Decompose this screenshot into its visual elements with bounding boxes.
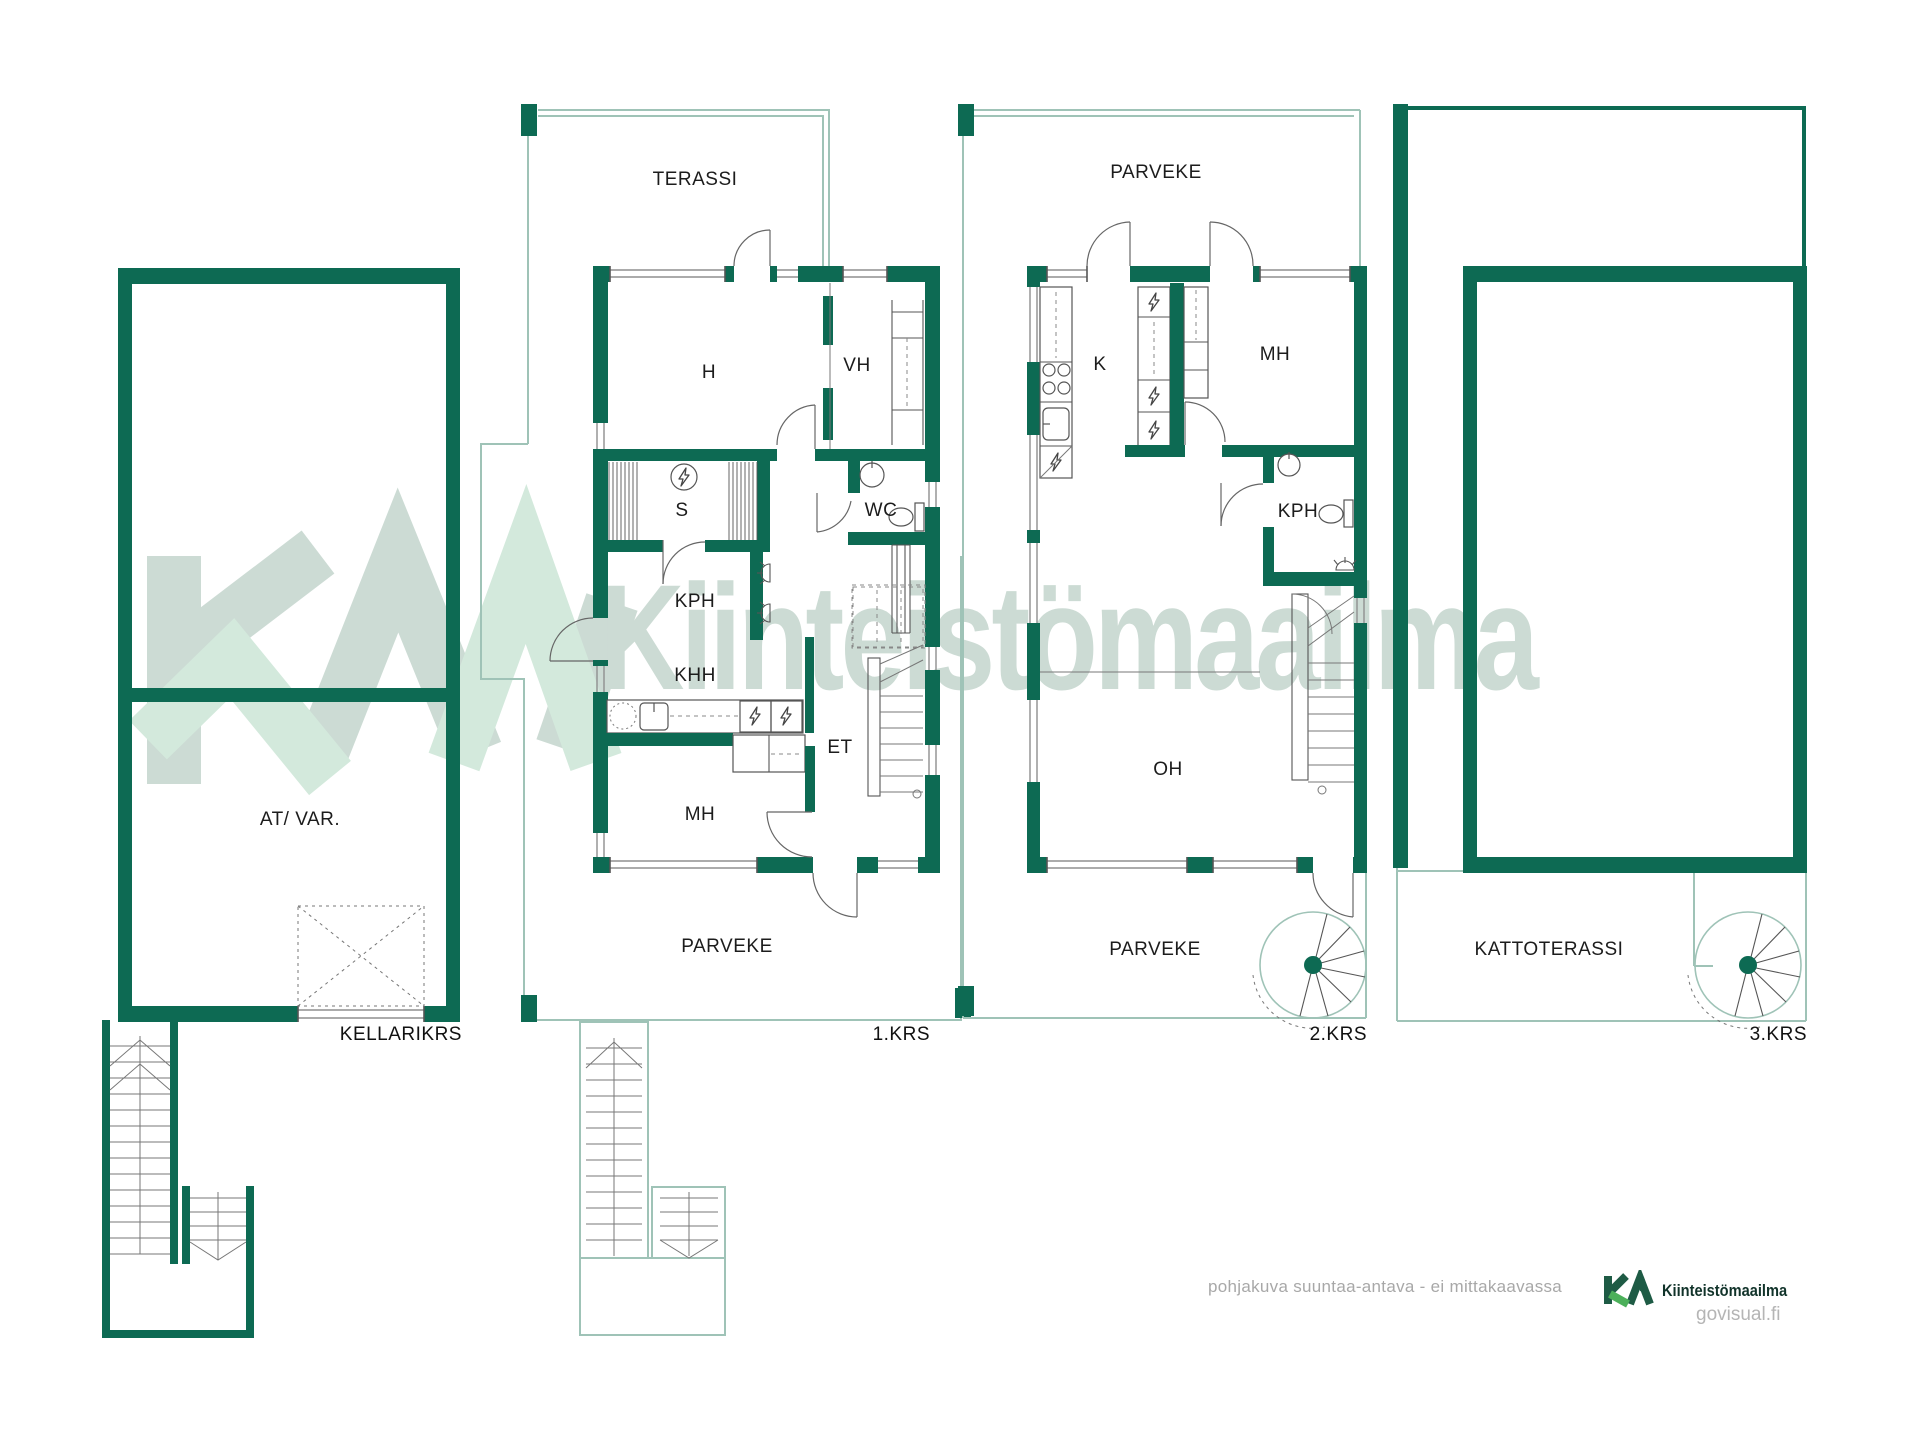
khh-counter bbox=[607, 700, 803, 733]
floor-3krs bbox=[1393, 104, 1807, 1028]
area-label-parveke-1: PARVEKE bbox=[681, 936, 773, 958]
plan-linework bbox=[0, 0, 1920, 1440]
disclaimer-text: pohjakuva suuntaa-antava - ei mittakaava… bbox=[1208, 1277, 1562, 1297]
area-label-parveke-2bot: PARVEKE bbox=[1109, 939, 1201, 961]
room-label-s: S bbox=[675, 500, 688, 522]
f3-spiral-stair-icon bbox=[1688, 912, 1801, 1028]
room-label-oh: OH bbox=[1153, 759, 1183, 781]
room-label-et: ET bbox=[827, 737, 852, 759]
km-logo-icon bbox=[1600, 1270, 1658, 1310]
floorplan-canvas: Kiinteistömaailma bbox=[0, 0, 1920, 1440]
floor-label-2krs: 2.KRS bbox=[1310, 1024, 1367, 1046]
floor-2krs bbox=[958, 104, 1367, 1028]
room-label-vh: VH bbox=[843, 355, 870, 377]
garage-door-opening bbox=[298, 1006, 424, 1022]
room-label-khh: KHH bbox=[674, 665, 716, 687]
area-label-terassi: TERASSI bbox=[653, 169, 738, 191]
sauna bbox=[593, 460, 770, 584]
room-label-kph-2: KPH bbox=[1278, 501, 1319, 523]
room-label-mh-1: MH bbox=[685, 804, 716, 826]
room-label-k: K bbox=[1093, 354, 1106, 376]
room-label-kph-1: KPH bbox=[675, 591, 716, 613]
basement-exterior-stair bbox=[102, 1020, 254, 1338]
f2-spiral-stair-icon bbox=[1253, 912, 1366, 1028]
mh-closet bbox=[733, 735, 805, 772]
vh-closet bbox=[823, 283, 923, 449]
wall-lamp-icon bbox=[1334, 557, 1356, 570]
floor-1krs bbox=[481, 104, 971, 1335]
kph2-toilet-icon bbox=[1319, 505, 1343, 523]
floor-label-1krs: 1.KRS bbox=[873, 1024, 930, 1046]
appliance-tower bbox=[1138, 287, 1170, 447]
floor-label-3krs: 3.KRS bbox=[1750, 1024, 1807, 1046]
f2-right-wall bbox=[1354, 266, 1367, 873]
mh-closet-f2 bbox=[1184, 287, 1208, 398]
brand-name: Kiinteistömaailma bbox=[1662, 1281, 1787, 1301]
room-label-mh-2: MH bbox=[1260, 344, 1291, 366]
electrical-panel-icon bbox=[671, 464, 697, 490]
area-label-parveke-2top: PARVEKE bbox=[1110, 162, 1202, 184]
f2-staircase bbox=[1292, 594, 1354, 794]
f1-left-wall bbox=[550, 266, 608, 873]
garage-door-swing-area bbox=[298, 906, 424, 1006]
f2-parveke-outline bbox=[963, 110, 1366, 1018]
f1-exterior-stair bbox=[580, 1022, 725, 1335]
floor-label-kellarikrs: KELLARIKRS bbox=[340, 1024, 462, 1046]
et-wardrobe bbox=[852, 545, 925, 648]
f2-left-wall bbox=[1027, 266, 1040, 873]
brand-site: govisual.fi bbox=[1696, 1304, 1781, 1326]
terassi-outline bbox=[481, 110, 961, 1020]
et-staircase bbox=[853, 587, 923, 798]
f1-bottom-wall bbox=[593, 857, 940, 917]
kitchen-fittings bbox=[1040, 287, 1072, 478]
area-label-kattoterassi: KATTOTERASSI bbox=[1475, 939, 1624, 961]
f2-top-wall bbox=[1027, 222, 1367, 282]
room-label-at-var: AT/ VAR. bbox=[260, 809, 340, 831]
room-label-h: H bbox=[702, 362, 716, 384]
room-label-wc: WC bbox=[865, 500, 898, 522]
brand-block: Kiinteistömaailma govisual.fi bbox=[1600, 1270, 1658, 1315]
floor-kellarikrs bbox=[102, 268, 460, 1338]
f1-right-wall bbox=[925, 266, 940, 873]
f1-top-wall bbox=[593, 230, 940, 282]
f2-bottom-wall bbox=[1027, 857, 1367, 917]
